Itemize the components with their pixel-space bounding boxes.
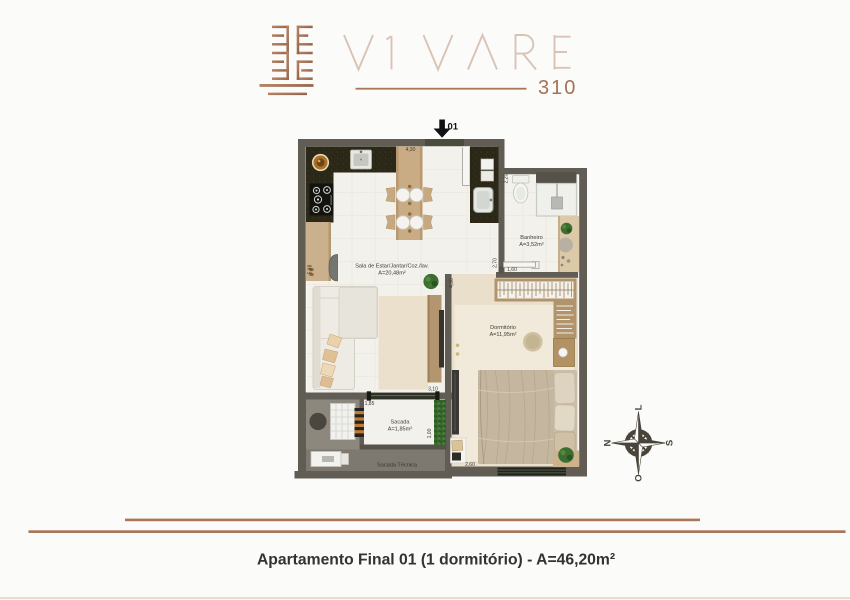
svg-text:3,10: 3,10 [428, 387, 438, 393]
svg-text:Dormitório: Dormitório [490, 325, 516, 331]
svg-text:A=1,85m²: A=1,85m² [388, 427, 413, 433]
svg-text:01: 01 [448, 122, 459, 133]
svg-text:Sacada: Sacada [391, 420, 411, 426]
svg-text:Apartamento Final 01 (1 dormit: Apartamento Final 01 (1 dormitório) - A=… [257, 552, 615, 569]
svg-text:1,60: 1,60 [507, 267, 517, 273]
svg-text:A=11,95m²: A=11,95m² [489, 332, 516, 338]
svg-text:Sala de Estar/Jantar/Coz./lav.: Sala de Estar/Jantar/Coz./lav. [355, 264, 429, 270]
svg-text:2,60: 2,60 [465, 462, 475, 468]
svg-text:2,70: 2,70 [493, 258, 499, 268]
svg-text:Banheiro: Banheiro [520, 235, 542, 241]
svg-text:A=20,48m²: A=20,48m² [378, 271, 406, 277]
svg-text:2,20: 2,20 [504, 173, 510, 183]
svg-text:O: O [634, 474, 645, 481]
svg-text:L: L [634, 404, 645, 410]
svg-text:4,30: 4,30 [406, 147, 416, 153]
svg-text:Sacada Técnica: Sacada Técnica [377, 463, 418, 469]
svg-text:N: N [603, 439, 614, 446]
svg-text:310: 310 [538, 77, 577, 99]
svg-text:1,85: 1,85 [365, 401, 375, 407]
svg-text:4,30: 4,30 [449, 278, 455, 288]
svg-text:A=3,52m²: A=3,52m² [519, 242, 544, 248]
svg-text:S: S [665, 440, 676, 446]
svg-text:5,88: 5,88 [308, 264, 314, 274]
svg-text:1,00: 1,00 [427, 428, 433, 438]
